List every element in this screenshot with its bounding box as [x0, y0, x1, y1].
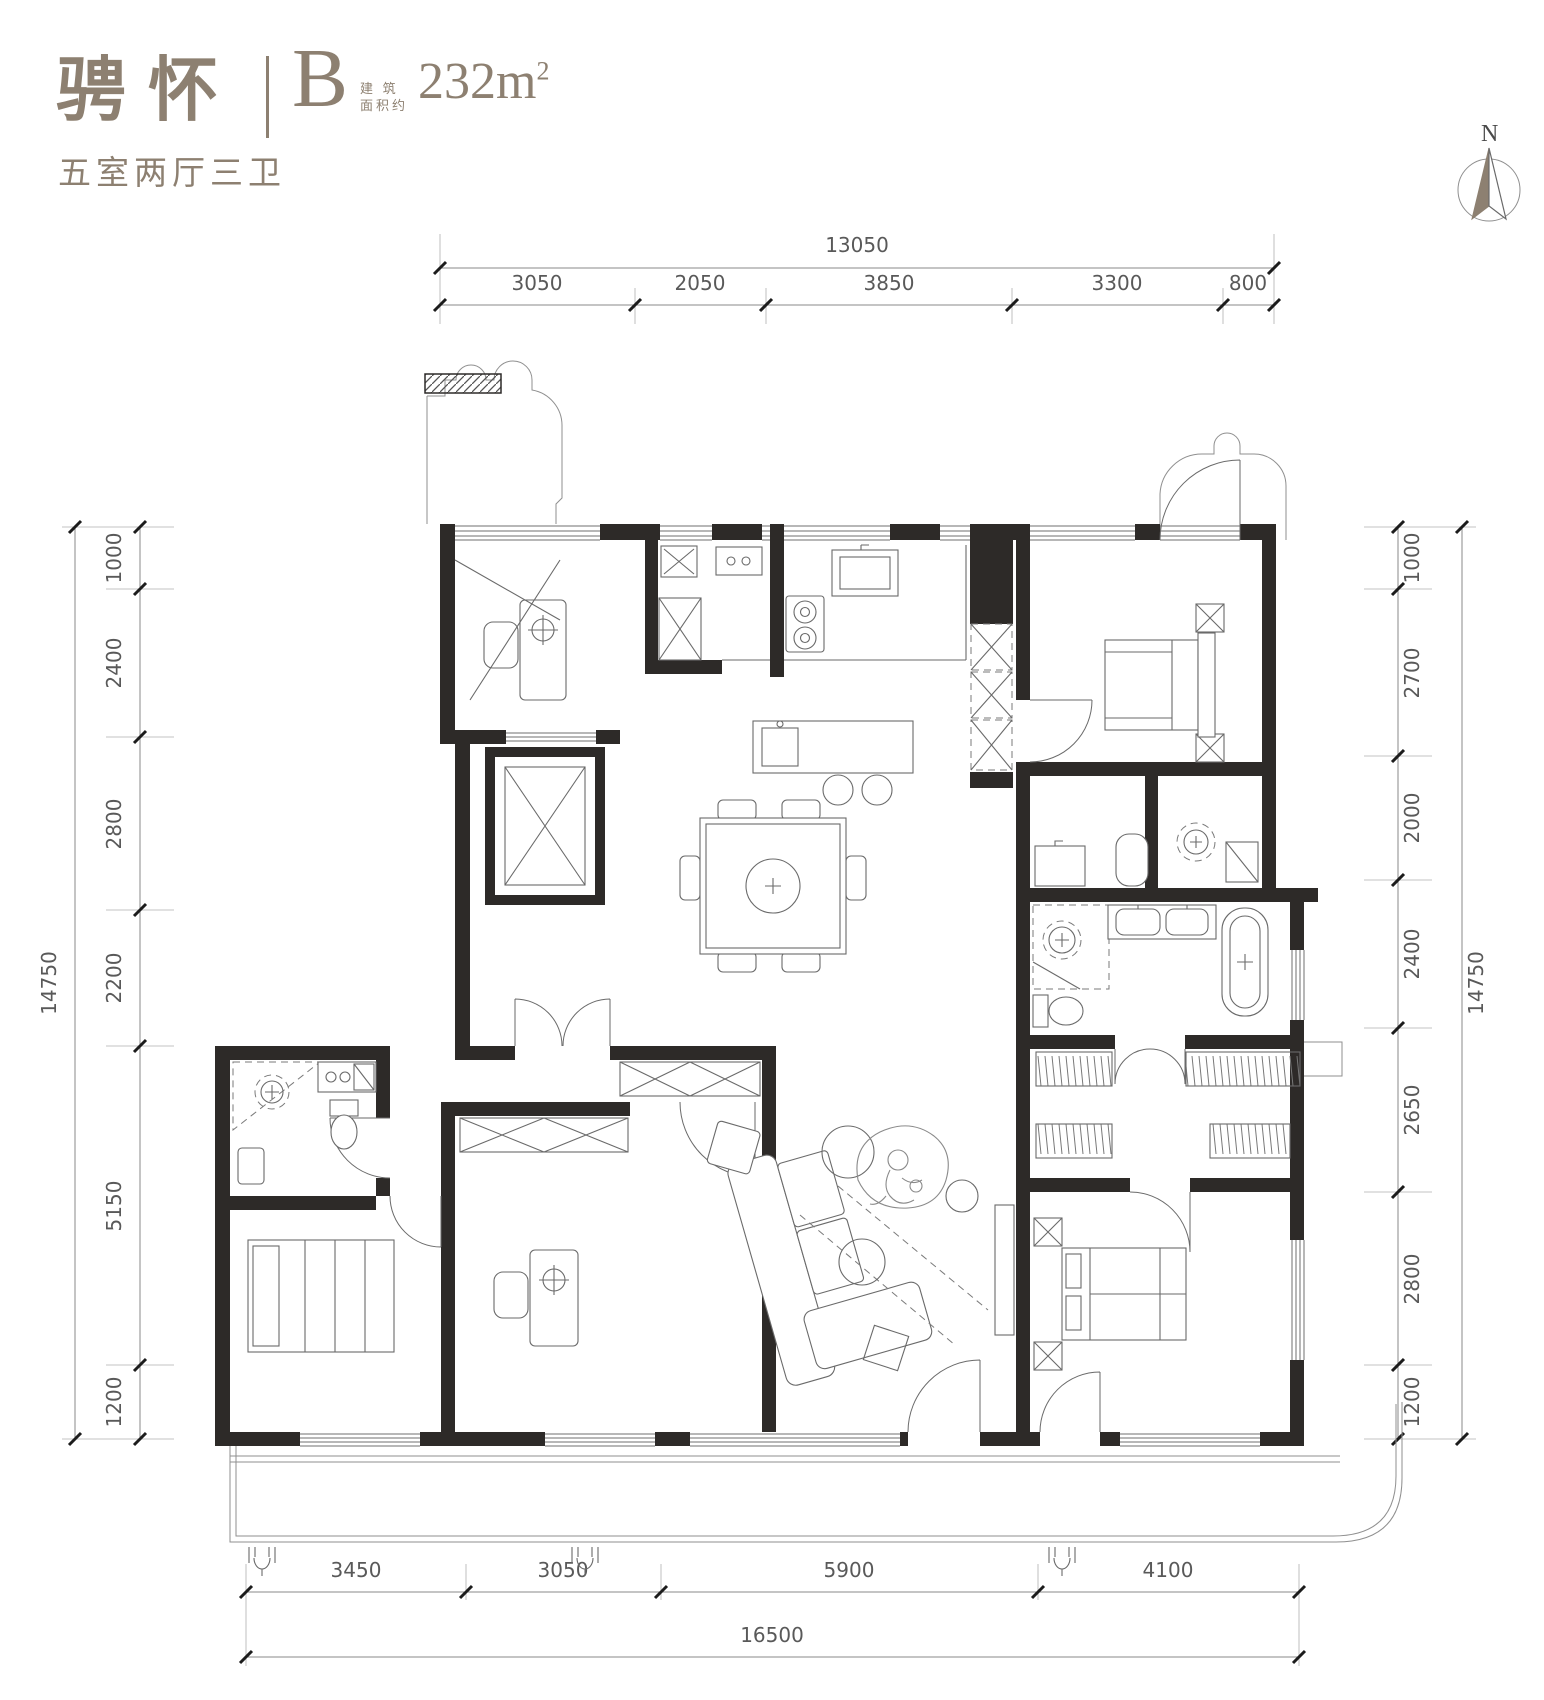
toilet-tank	[1033, 995, 1048, 1027]
svg-text:2700: 2700	[1400, 648, 1424, 699]
water-heater	[1116, 834, 1148, 886]
area-exponent: 2	[536, 57, 549, 86]
stool	[823, 775, 853, 805]
bottom-balcony	[230, 1402, 1402, 1576]
toilet-tank	[330, 1100, 358, 1116]
svg-text:2800: 2800	[1400, 1254, 1424, 1305]
utility-room	[659, 546, 762, 660]
desk	[530, 1250, 578, 1346]
area-label: 建 筑 面积约	[360, 80, 408, 114]
dim-bottom-total: 16500	[740, 1623, 804, 1647]
elevator	[490, 752, 600, 900]
svg-text:800: 800	[1229, 271, 1267, 295]
north-label: N	[1481, 121, 1498, 147]
dim-right: 1000 2700 2000 2400 2650 2800 1200 14750	[1364, 521, 1488, 1445]
svg-text:5150: 5150	[102, 1181, 126, 1232]
svg-text:2200: 2200	[102, 953, 126, 1004]
page-title: 骋怀	[56, 34, 240, 135]
toilet-bowl	[331, 1115, 357, 1149]
left-bath	[233, 1062, 376, 1184]
top-left-balcony	[425, 361, 562, 524]
area-label-line1: 建 筑	[360, 80, 408, 97]
headboard	[1198, 633, 1215, 737]
svg-text:3850: 3850	[864, 271, 915, 295]
vanity	[1108, 905, 1216, 939]
pantry-cabinets	[971, 624, 1012, 770]
svg-text:2800: 2800	[102, 799, 126, 850]
bedroom-bottom-left	[248, 1240, 394, 1352]
bed	[1105, 640, 1198, 730]
svg-text:3300: 3300	[1092, 271, 1143, 295]
top-right-balcony	[1160, 433, 1286, 540]
svg-text:2400: 2400	[102, 638, 126, 689]
svg-text:2400: 2400	[1400, 929, 1424, 980]
dim-left-total: 14750	[37, 951, 61, 1015]
svg-text:2650: 2650	[1400, 1085, 1424, 1136]
floorplan-page: 骋怀 B 建 筑 面积约 232m2 五室两厅三卫 N 13050	[0, 0, 1544, 1700]
svg-text:4100: 4100	[1143, 1558, 1194, 1582]
svg-text:2050: 2050	[675, 271, 726, 295]
dim-left: 1000 2400 2800 2200 5150 1200 14750	[37, 521, 174, 1445]
ball	[946, 1180, 978, 1212]
svg-text:1200: 1200	[102, 1377, 126, 1428]
study-room	[455, 560, 566, 700]
master-bath	[1033, 905, 1268, 1027]
bed	[248, 1240, 394, 1352]
tv-cabinet	[995, 1205, 1014, 1335]
svg-text:1000: 1000	[102, 533, 126, 584]
person-figures	[857, 1126, 948, 1208]
living-room	[696, 1080, 988, 1393]
stool	[862, 775, 892, 805]
svg-text:3050: 3050	[538, 1558, 589, 1582]
north-compass: N	[1458, 121, 1520, 221]
chair	[494, 1272, 528, 1318]
dim-bottom: 3450 3050 5900 4100 16500	[240, 1558, 1305, 1666]
pouf	[822, 1126, 874, 1178]
dim-top-total: 13050	[825, 233, 889, 257]
dressing-area	[1036, 1052, 1300, 1158]
area-label-line2: 面积约	[360, 97, 408, 114]
title-divider	[266, 56, 269, 138]
svg-text:3450: 3450	[331, 1558, 382, 1582]
right-wall-step	[1304, 1042, 1342, 1076]
unit-letter: B	[292, 30, 348, 127]
foyer	[620, 1062, 760, 1096]
layout-summary: 五室两厅三卫	[58, 146, 286, 194]
dim-top: 13050 3050 2050 3850 3300 800	[434, 233, 1280, 324]
vanity	[318, 1062, 376, 1092]
dim-right-total: 14750	[1464, 951, 1488, 1015]
area-value: 232m2	[418, 52, 549, 111]
svg-text:3050: 3050	[512, 271, 563, 295]
sofa-chaise	[802, 1280, 934, 1371]
closet	[460, 1118, 628, 1152]
svg-text:1000: 1000	[1400, 533, 1424, 584]
middle-room	[460, 1118, 628, 1346]
svg-text:5900: 5900	[824, 1558, 875, 1582]
svg-text:1200: 1200	[1400, 1377, 1424, 1428]
bedroom-top-right	[1105, 604, 1224, 762]
floorplan-drawing: N 13050 3050 2050 3850 3300 800 3450 305…	[0, 0, 1544, 1700]
toilet-bowl	[1049, 997, 1083, 1025]
dining-area	[680, 800, 866, 972]
cabinet	[238, 1148, 264, 1184]
svg-text:2000: 2000	[1400, 793, 1424, 844]
kitchen-island	[753, 721, 913, 805]
shoe-cabinet	[620, 1062, 760, 1096]
